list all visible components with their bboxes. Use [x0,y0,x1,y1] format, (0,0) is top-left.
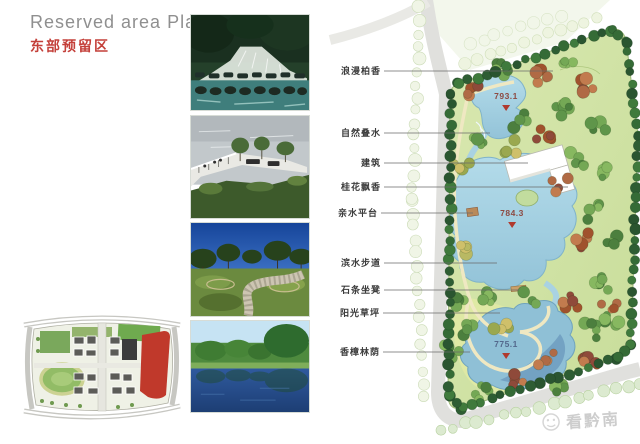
elevation-marker-middle: 784.3 [500,203,524,228]
elevation-value: 784.3 [500,208,524,218]
water-level-icon [502,105,510,111]
watermark-text: 看黔南 [565,405,621,433]
water-level-icon [508,222,516,228]
callout-romantic-cypress: 浪漫柏香 [333,65,381,77]
page-title-zh: 东部预留区 [30,36,207,56]
photo-waterfall-cascade [190,14,310,111]
photo-lake-art [191,321,309,412]
elevation-marker-lower: 775.1 [494,334,518,359]
callout-waterside-walk: 滨水步道 [333,257,381,269]
photo-park-path [190,222,310,317]
callout-osmanthus: 桂花飘香 [333,181,381,193]
photo-park-art [191,223,309,316]
callout-camphor-shade: 香樟林荫 [332,346,380,358]
elevation-value: 775.1 [494,339,518,349]
callout-sunny-lawn: 阳光草坪 [332,307,380,319]
callout-water-platform: 亲水平台 [330,207,378,219]
elevation-marker-upper: 793.1 [494,86,518,111]
callout-stone-bench: 石条坐凳 [333,284,381,296]
water-level-icon [502,353,510,359]
photo-waterfront-pier [190,115,310,219]
photo-lake-reflection [190,320,310,413]
photo-pier-art [191,116,309,218]
overview-highlight-zone [140,331,170,399]
water-deck [466,207,478,216]
title-block: Reserved area Plan 东部预留区 [30,12,207,56]
watermark-logo-icon [539,411,562,432]
overview-key-map [22,303,182,428]
elevation-value: 793.1 [494,91,518,101]
slide-canvas: Reserved area Plan 东部预留区 [0,0,640,444]
page-title-en: Reserved area Plan [30,12,207,33]
callout-building: 建筑 [333,157,381,169]
photo-waterfall-art [191,15,309,110]
callout-natural-cascade: 自然叠水 [333,127,381,139]
